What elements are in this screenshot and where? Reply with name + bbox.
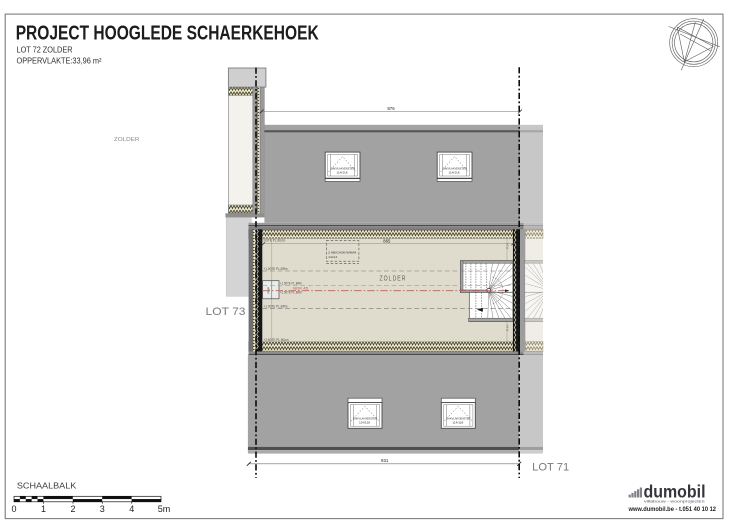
svg-text:3: 3 (100, 504, 105, 514)
svg-text:P.14: P.14 (505, 325, 509, 331)
svg-text:www.dumobil.be - t.051 40 10 1: www.dumobil.be - t.051 40 10 12 (628, 506, 717, 513)
svg-text:PROJECT HOOGLEDE SCHAERKEHOEK: PROJECT HOOGLEDE SCHAERKEHOEK (16, 23, 319, 45)
svg-text:5m: 5m (158, 504, 171, 514)
svg-text:114/118: 114/118 (337, 171, 348, 175)
svg-text:PMP: PMP (266, 287, 270, 294)
svg-text:865: 865 (383, 238, 391, 243)
svg-text:+2.60TE PL.80cm: +2.60TE PL.80cm (260, 238, 286, 242)
svg-text:SCHAALBALK: SCHAALBALK (17, 481, 77, 491)
svg-text:2: 2 (70, 504, 75, 514)
svg-text:876: 876 (387, 106, 395, 111)
svg-text:villabouw - woonprojecten: villabouw - woonprojecten (644, 499, 705, 503)
svg-text:ZOLDER: ZOLDER (114, 137, 139, 143)
svg-text:1: 1 (41, 504, 46, 514)
svg-text:114/118: 114/118 (452, 421, 463, 425)
svg-text:+2.60TE PL.80cm: +2.60TE PL.80cm (264, 338, 289, 342)
svg-text:LOT 72 ZOLDER: LOT 72 ZOLDER (17, 46, 73, 55)
svg-text:114/118: 114/118 (449, 171, 460, 175)
svg-text:OPPERVLAKTE:33,96 m²: OPPERVLAKTE:33,96 m² (17, 57, 102, 66)
svg-text:+1.00TE PL.BRm: +1.00TE PL.BRm (264, 267, 288, 271)
svg-text:+1.00TE PL.BRm: +1.00TE PL.BRm (264, 305, 288, 309)
svg-text:NOK 45: NOK 45 (293, 286, 308, 290)
svg-text:LOT 71: LOT 71 (532, 461, 569, 473)
svg-text:+1.50TE PL.BRm: +1.50TE PL.BRm (280, 291, 302, 295)
svg-text:0: 0 (11, 504, 16, 514)
svg-text:931: 931 (381, 458, 389, 463)
svg-text:+1.50TE PL.BRm: +1.50TE PL.BRm (280, 281, 302, 285)
svg-text:LOT 73: LOT 73 (206, 306, 246, 318)
svg-text:P.14: P.14 (505, 243, 509, 249)
svg-text:ZOLDER: ZOLDER (380, 273, 407, 282)
svg-text:4: 4 (129, 504, 134, 514)
svg-text:14x14: 14x14 (328, 255, 337, 259)
svg-text:114/118: 114/118 (359, 421, 370, 425)
svg-text:2 AB/GASK/WM/M: 2 AB/GASK/WM/M (328, 250, 357, 254)
